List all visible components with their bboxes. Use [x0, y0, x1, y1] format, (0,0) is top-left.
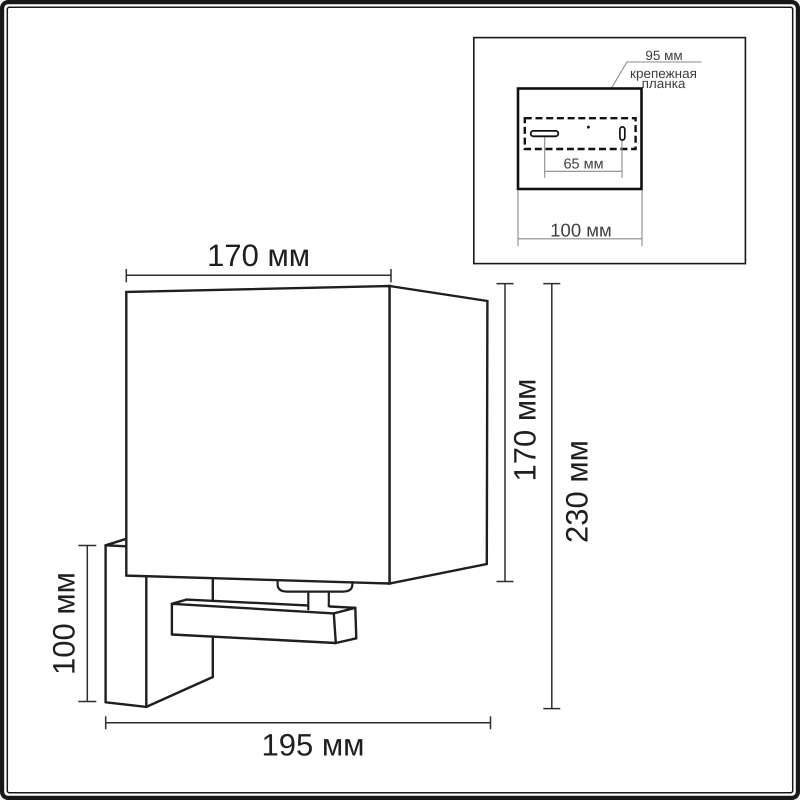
svg-text:100 мм: 100 мм — [550, 220, 611, 241]
svg-text:195 мм: 195 мм — [262, 728, 365, 763]
svg-text:95 мм: 95 мм — [645, 48, 682, 63]
svg-text:100 мм: 100 мм — [47, 572, 82, 675]
svg-text:планка: планка — [642, 76, 686, 91]
svg-text:170 мм: 170 мм — [508, 379, 543, 482]
svg-text:65 мм: 65 мм — [563, 156, 603, 172]
svg-text:170 мм: 170 мм — [207, 238, 310, 273]
svg-text:230 мм: 230 мм — [560, 440, 595, 543]
